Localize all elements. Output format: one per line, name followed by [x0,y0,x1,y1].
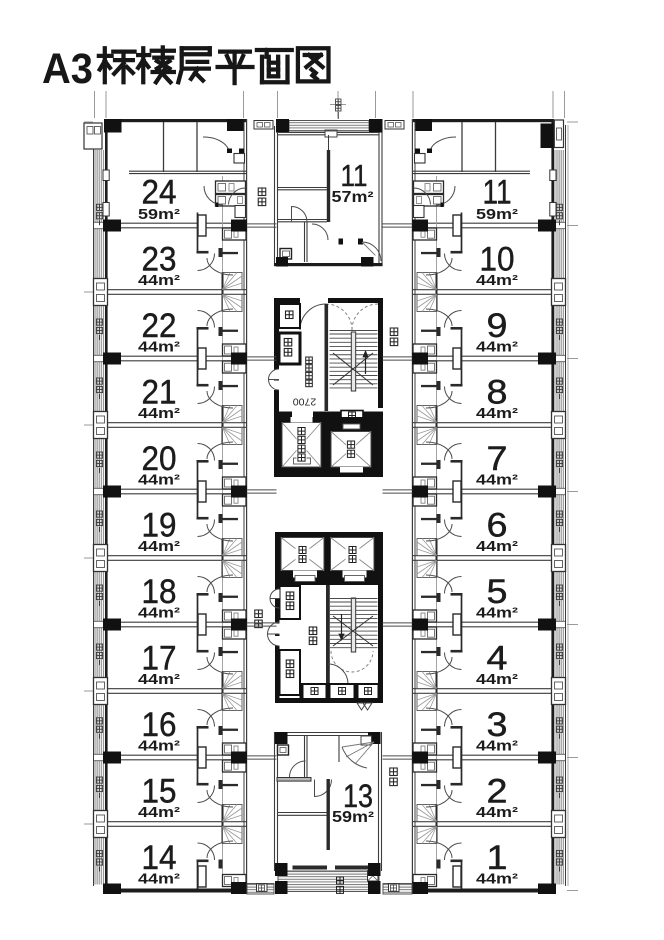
svg-text:59m²: 59m² [332,809,374,826]
svg-text:11: 11 [341,158,368,193]
svg-text:44m²: 44m² [138,473,180,489]
svg-text:44m²: 44m² [138,672,180,688]
svg-text:11: 11 [483,174,512,212]
svg-text:59m²: 59m² [138,207,180,223]
svg-text:A3: A3 [42,46,93,93]
svg-text:44m²: 44m² [476,340,518,356]
svg-text:44m²: 44m² [138,739,180,755]
svg-text:44m²: 44m² [138,606,180,622]
svg-text:59m²: 59m² [476,207,518,223]
svg-text:44m²: 44m² [138,340,180,356]
svg-text:44m²: 44m² [476,539,518,555]
svg-text:44m²: 44m² [476,273,518,289]
svg-text:44m²: 44m² [138,406,180,422]
svg-text:44m²: 44m² [476,872,518,888]
svg-text:2700: 2700 [293,396,317,408]
svg-text:44m²: 44m² [476,606,518,622]
svg-text:44m²: 44m² [138,805,180,821]
svg-text:44m²: 44m² [476,739,518,755]
svg-text:44m²: 44m² [476,672,518,688]
svg-text:44m²: 44m² [476,805,518,821]
svg-text:44m²: 44m² [138,273,180,289]
svg-text:44m²: 44m² [476,473,518,489]
svg-text:44m²: 44m² [138,872,180,888]
svg-text:24: 24 [142,174,177,212]
svg-text:44m²: 44m² [476,406,518,422]
svg-text:44m²: 44m² [138,539,180,555]
svg-text:57m²: 57m² [332,189,374,206]
